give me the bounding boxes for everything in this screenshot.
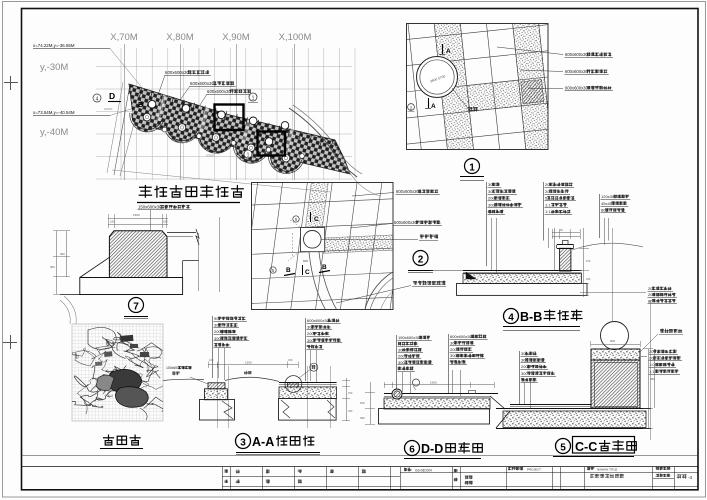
svg-text:7: 7: [133, 302, 139, 313]
svg-text:20000: 20000: [206, 154, 215, 158]
svg-text:A-A: A-A: [252, 435, 274, 449]
svg-text:x=74.22M,y=-36.55M: x=74.22M,y=-36.55M: [33, 43, 75, 48]
svg-text:600x600x30: 600x600x30: [565, 86, 588, 91]
svg-text:30: 30: [488, 189, 493, 194]
svg-text:C: C: [314, 216, 319, 223]
svg-text:150x600x30: 150x600x30: [138, 205, 162, 210]
svg-text:600x600x30: 600x600x30: [190, 81, 214, 86]
svg-text:600x600x30: 600x600x30: [165, 70, 189, 75]
svg-text:300: 300: [586, 277, 591, 281]
svg-text:C: C: [305, 269, 310, 276]
svg-text:120x30: 120x30: [601, 194, 615, 199]
svg-text:X,100M: X,100M: [279, 32, 312, 43]
svg-text:450: 450: [348, 409, 353, 413]
svg-text:600x600x30: 600x600x30: [394, 220, 417, 225]
svg-text:150: 150: [110, 220, 115, 224]
svg-text:1:1: 1:1: [545, 209, 551, 214]
svg-text:300: 300: [398, 360, 405, 365]
svg-text:150: 150: [163, 220, 168, 224]
svg-text:4: 4: [96, 97, 99, 103]
svg-text:GS-08C004: GS-08C004: [415, 468, 432, 472]
svg-text:1: 1: [252, 96, 255, 102]
svg-text:600x600x30: 600x600x30: [307, 318, 330, 323]
svg-text:y,-40M: y,-40M: [40, 127, 68, 138]
svg-text:1500: 1500: [430, 381, 437, 385]
svg-text:2: 2: [418, 255, 424, 266]
svg-text:A: A: [446, 48, 451, 55]
svg-text:B-B: B-B: [520, 310, 542, 324]
svg-text:B: B: [322, 264, 327, 271]
svg-text:A: A: [431, 103, 436, 110]
svg-text:1: 1: [247, 153, 250, 159]
svg-text:600: 600: [610, 339, 615, 343]
svg-text:600x600x30: 600x600x30: [565, 52, 588, 57]
svg-text:NANKIN TITLE: NANKIN TITLE: [597, 467, 617, 471]
svg-text:300: 300: [360, 416, 365, 420]
svg-text:20: 20: [648, 286, 653, 291]
svg-text:5: 5: [560, 443, 566, 454]
svg-text:-4: -4: [688, 475, 693, 480]
svg-text:45x45: 45x45: [601, 201, 613, 206]
svg-text:150: 150: [360, 401, 365, 405]
svg-text:450: 450: [650, 377, 655, 381]
svg-text:600x600x30: 600x600x30: [207, 89, 231, 94]
svg-text:D-D: D-D: [421, 442, 443, 456]
svg-text:B: B: [286, 267, 291, 274]
svg-text:D: D: [109, 91, 115, 101]
svg-text:C-C: C-C: [575, 440, 597, 454]
svg-text:x=73.54M,y=-40.54M: x=73.54M,y=-40.54M: [33, 110, 75, 115]
svg-text:1:1: 1:1: [545, 202, 551, 207]
svg-text:150x600x30: 150x600x30: [398, 335, 421, 340]
svg-text:1: 1: [469, 163, 475, 174]
svg-text:450: 450: [50, 265, 55, 269]
svg-text:PROJECT: PROJECT: [527, 467, 541, 471]
svg-text:150: 150: [586, 259, 591, 263]
svg-text:y,-30M: y,-30M: [40, 62, 68, 73]
svg-text:100: 100: [209, 358, 214, 362]
svg-text:4: 4: [508, 313, 514, 324]
svg-text:600: 600: [303, 259, 308, 263]
svg-text:1500: 1500: [133, 213, 140, 217]
svg-text:1200: 1200: [245, 361, 252, 365]
svg-text:150: 150: [348, 391, 353, 395]
svg-text:300: 300: [488, 202, 495, 207]
svg-text:3: 3: [240, 438, 246, 449]
svg-text:600x600x30: 600x600x30: [565, 69, 588, 74]
svg-text:X,70M: X,70M: [110, 32, 138, 43]
svg-text:B: B: [138, 100, 144, 109]
svg-text:20000: 20000: [104, 107, 113, 111]
svg-text:X,80M: X,80M: [166, 32, 194, 43]
svg-text:150: 150: [288, 358, 293, 362]
svg-text:600x600x30: 600x600x30: [396, 189, 419, 194]
svg-text:600x600x30: 600x600x30: [450, 334, 473, 339]
svg-text:300: 300: [60, 252, 65, 256]
svg-text:X,90M: X,90M: [222, 32, 250, 43]
svg-text:100x600: 100x600: [166, 366, 179, 370]
svg-text:6: 6: [409, 445, 415, 456]
